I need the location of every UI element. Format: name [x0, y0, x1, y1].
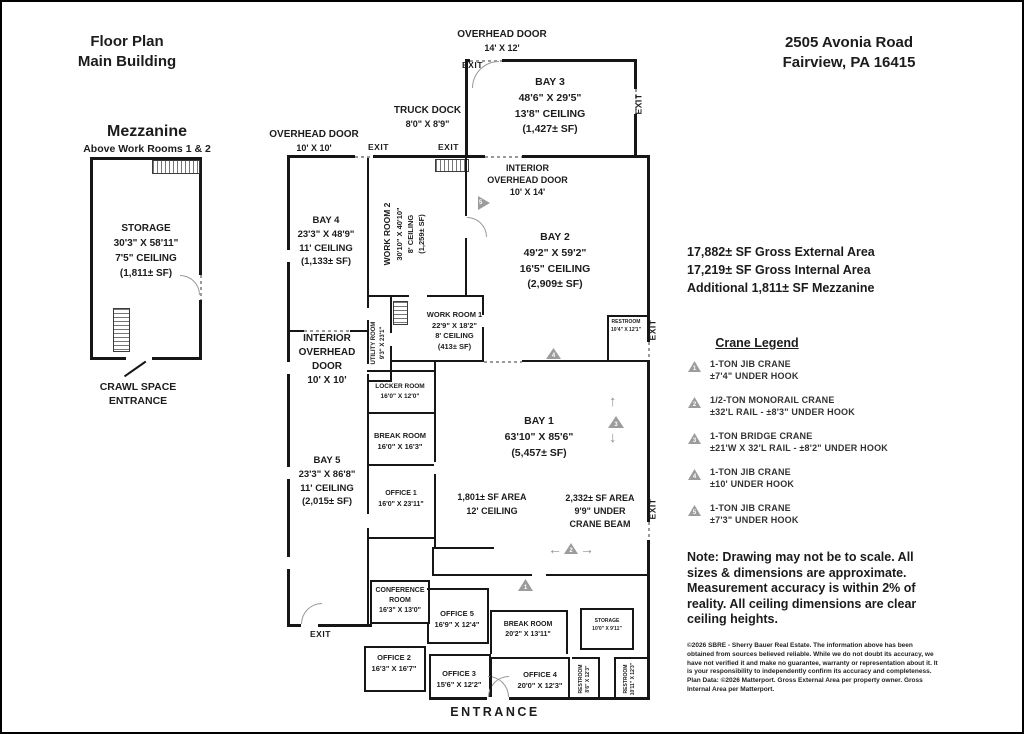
page-title-line1: Floor Plan [47, 32, 207, 52]
room-dims: 23'3" X 86'8" [287, 468, 367, 482]
door-label-line: OVERHEAD DOOR [470, 174, 585, 186]
door-label-line: 10' X 10' [290, 374, 364, 388]
wall-segment [522, 360, 647, 362]
legend-line: ±32'L RAIL - ±8'3" UNDER HOOK [710, 407, 960, 419]
wall-segment [502, 59, 637, 62]
room-dims: 16'0" X 16'3" [362, 441, 438, 452]
wall-segment [634, 59, 637, 89]
crane-legend-icon-2: 2 [688, 397, 701, 408]
exit-label: EXIT [310, 629, 331, 639]
page-title: Floor Plan Main Building [47, 32, 207, 71]
room-dims: 22'9" X 18'2" [397, 321, 512, 332]
exit-label: EXIT [647, 320, 657, 341]
room-break-mid: BREAK ROOM 16'0" X 16'3" [362, 430, 438, 453]
room-ceiling: 13'8" CEILING [470, 107, 630, 123]
exit-label: EXIT [438, 142, 459, 152]
room-dims: 8'6" X 12'3" [585, 665, 593, 694]
arrow-up-icon: ↑ [609, 394, 617, 409]
room-name: BAY 2 [485, 230, 625, 246]
crane-legend-icon-1: 1 [688, 361, 701, 372]
wall-segment [465, 158, 467, 216]
room-bay5: BAY 5 23'3" X 86'8" 11' CEILING (2,015± … [287, 454, 367, 509]
room-dims: 49'2" X 59'2" [485, 246, 625, 262]
wall-segment [429, 654, 491, 656]
room-dims: 30'3" X 58'11" [92, 236, 200, 251]
room-name: OFFICE 3 [428, 668, 490, 679]
door-label-line: OVERHEAD DOOR [264, 128, 364, 142]
truck-dock-label: TRUCK DOCK 8'0" X 8'9" [380, 104, 475, 131]
address-line1: 2505 Avonia Road [760, 33, 938, 53]
crane-marker-4-icon: 4 [546, 348, 561, 359]
overhead-door-opening [485, 156, 522, 158]
room-name: CONFERENCE ROOM [371, 586, 429, 606]
crane-legend-icon-3: 3 [688, 433, 701, 444]
door-label-line: INTERIOR [470, 162, 585, 174]
door-label-line: INTERIOR [290, 332, 364, 346]
room-name: UTILITY ROOM [370, 322, 379, 365]
room-conference: CONFERENCE ROOM 16'3" X 13'0" [371, 586, 429, 616]
copyright-text: ©2026 SBRE - Sherry Bauer Real Estate. T… [687, 642, 939, 695]
stairs-icon [435, 159, 469, 172]
door-label-line: 8'0" X 8'9" [380, 118, 475, 131]
gross-external-area: 17,882± SF Gross External Area [687, 244, 937, 262]
door-label-line: 10' X 14' [470, 186, 585, 198]
room-dims: 10'11" X 12'3" [630, 663, 638, 695]
room-area: (2,015± SF) [287, 495, 367, 509]
room-locker: LOCKER ROOM 16'0" X 12'0" [365, 382, 435, 402]
disclaimer-note: Note: Drawing may not be to scale. All s… [687, 550, 941, 628]
room-ceiling: 11' CEILING [287, 482, 367, 496]
wall-segment [287, 569, 290, 627]
door-label-line: DOOR [290, 360, 364, 374]
room-workroom1: WORK ROOM 1 22'9" X 18'2" 8' CEILING (41… [397, 310, 512, 352]
crane-marker-1-icon: 1 [518, 579, 533, 591]
room-name: RESTROOM [578, 665, 586, 694]
door-opening [355, 156, 373, 158]
room-name: OFFICE 5 [427, 608, 487, 619]
wall-segment [367, 528, 369, 624]
door-opening [200, 275, 202, 300]
wall-segment [632, 608, 634, 650]
room-bay2: BAY 2 49'2" X 59'2" 16'5" CEILING (2,909… [485, 230, 625, 293]
mezzanine-area: Additional 1,811± SF Mezzanine [687, 280, 937, 298]
door-label-line: 14' X 12' [432, 42, 572, 55]
wall-segment [427, 295, 484, 297]
room-restroom-bay2: RESTROOM 10'4" X 12'1" [606, 319, 646, 334]
room-name: STORAGE [582, 618, 632, 626]
stairs-icon [152, 160, 200, 174]
door-label-line: OVERHEAD DOOR [432, 28, 572, 42]
floor-plan-canvas: Floor Plan Main Building 2505 Avonia Roa… [0, 0, 1024, 734]
wall-segment [427, 588, 489, 590]
arrow-right-icon: → [580, 542, 594, 556]
wall-segment [546, 574, 650, 576]
wall-segment [318, 624, 372, 627]
overhead-door-top-label: OVERHEAD DOOR 14' X 12' [432, 28, 572, 55]
wall-segment [465, 238, 467, 295]
property-address: 2505 Avonia Road Fairview, PA 16415 [760, 33, 938, 72]
exit-label: EXIT [462, 60, 483, 70]
wall-segment [370, 622, 430, 624]
room-area: (1,259± SF) [416, 203, 427, 266]
room-storage-bottom: STORAGE 10'0" X 9'11" [582, 618, 632, 633]
overhead-door-left-label: OVERHEAD DOOR 10' X 10' [264, 128, 364, 154]
room-area: (5,457± SF) [469, 446, 609, 462]
crane-legend-item: 1-TON JIB CRANE ±7'3" UNDER HOOK [710, 503, 960, 527]
room-bay3: BAY 3 48'6" X 29'5" 13'8" CEILING (1,427… [470, 75, 630, 138]
legend-line: ±7'4" UNDER HOOK [710, 371, 960, 383]
room-name: RESTROOM [623, 663, 631, 695]
crane-legend-icon-4: 4 [688, 469, 701, 480]
legend-line: 1-TON JIB CRANE [710, 467, 960, 479]
legend-line: ±21'W X 32'L RAIL - ±8'2" UNDER HOOK [710, 443, 960, 455]
door-opening [484, 361, 522, 363]
room-name: BREAK ROOM [486, 620, 570, 630]
entrance-label: ENTRANCE [430, 703, 560, 721]
wall-segment [370, 580, 430, 582]
area-2332-label: 2,332± SF AREA 9'9" UNDER CRANE BEAM [548, 492, 652, 531]
wall-segment [427, 642, 489, 644]
wall-segment [647, 158, 650, 342]
area-line: 1,801± SF AREA [439, 491, 545, 505]
room-name: WORK ROOM 1 [397, 310, 512, 321]
room-ceiling: 7'5" CEILING [92, 251, 200, 266]
room-dims: 16'3" X 13'0" [371, 606, 429, 616]
room-dims: 10'4" X 12'1" [606, 327, 646, 335]
door-label-line: TRUCK DOCK [380, 104, 475, 118]
room-area: (1,811± SF) [92, 266, 200, 281]
legend-line: 1-TON BRIDGE CRANE [710, 431, 960, 443]
page-title-line2: Main Building [47, 52, 207, 72]
room-break-bottom: BREAK ROOM 20'2" X 13'11" [486, 620, 570, 640]
wall-segment [580, 648, 634, 650]
wall-segment [467, 155, 485, 158]
door-swing-icon [467, 217, 487, 237]
crawl-line1: CRAWL SPACE [78, 380, 198, 394]
mezzanine-title-text: Mezzanine [67, 120, 227, 143]
arrow-left-icon: ← [548, 542, 562, 556]
door-label-line: OVERHEAD [290, 346, 364, 360]
room-restroom-b: RESTROOM 10'11" X 12'3" [603, 652, 657, 706]
wall-segment [364, 646, 426, 648]
room-dims: 15'6" X 12'2" [428, 679, 490, 690]
exit-label: EXIT [633, 94, 643, 115]
interior-overhead-door-left-label: INTERIOR OVERHEAD DOOR 10' X 10' [290, 332, 364, 388]
wall-segment [634, 114, 637, 158]
room-dims: 20'2" X 13'11" [486, 630, 570, 640]
wall-segment [392, 360, 484, 362]
wall-segment [287, 624, 301, 627]
wall-segment [90, 357, 126, 360]
room-dims: 63'10" X 85'6" [469, 430, 609, 446]
address-line2: Fairview, PA 16415 [760, 53, 938, 73]
area-1801-label: 1,801± SF AREA 12' CEILING [439, 491, 545, 518]
room-ceiling: 16'5" CEILING [485, 262, 625, 278]
area-line: 12' CEILING [439, 505, 545, 519]
room-area: (1,427± SF) [470, 122, 630, 138]
room-area: (2,909± SF) [485, 277, 625, 293]
wall-segment [429, 697, 487, 700]
room-name: OFFICE 1 [365, 489, 437, 500]
room-name: BAY 5 [287, 454, 367, 468]
room-name: BREAK ROOM [362, 430, 438, 441]
room-dims: 9'3" X 23'1" [379, 322, 388, 365]
crane-legend-item: 1/2-TON MONORAIL CRANE ±32'L RAIL - ±8'3… [710, 395, 960, 419]
wall-segment [607, 315, 647, 317]
door-swing-icon [301, 603, 322, 624]
wall-segment [522, 155, 634, 158]
wall-segment [373, 155, 467, 158]
room-bay1: BAY 1 63'10" X 85'6" (5,457± SF) [469, 414, 609, 461]
gross-internal-area: 17,219± SF Gross Internal Area [687, 262, 937, 280]
room-office5: OFFICE 5 16'9" X 12'4" [427, 608, 487, 631]
wall-segment [369, 295, 409, 297]
room-name: BAY 3 [470, 75, 630, 91]
legend-line: 1-TON JIB CRANE [710, 503, 960, 515]
exit-label: EXIT [368, 142, 389, 152]
room-workroom2: WORK ROOM 2 30'10" X 40'10" 8' CEILING (… [354, 184, 454, 284]
stairs-icon [113, 308, 130, 352]
room-dims: 48'6" X 29'5" [470, 91, 630, 107]
room-name: RESTROOM [606, 319, 646, 327]
door-opening [648, 342, 650, 360]
wall-segment [434, 547, 494, 549]
area-line: 2,332± SF AREA [548, 492, 652, 505]
room-office3: OFFICE 3 15'6" X 12'2" [428, 668, 490, 691]
legend-line: ±7'3" UNDER HOOK [710, 515, 960, 527]
wall-segment [287, 155, 355, 158]
mezzanine-subtitle: Above Work Rooms 1 & 2 [67, 143, 227, 156]
wall-segment [367, 412, 434, 414]
mezzanine-title: Mezzanine Above Work Rooms 1 & 2 [67, 120, 227, 156]
room-dims: 16'0" X 23'11" [365, 500, 437, 511]
crane-marker-2-icon: 2 [564, 543, 578, 554]
arrow-down-icon: ↓ [609, 430, 617, 445]
crawl-space-label: CRAWL SPACE ENTRANCE [78, 380, 198, 408]
room-dims: 16'9" X 12'4" [427, 619, 487, 630]
crane-marker-3-icon: 3 [608, 416, 624, 428]
legend-line: 1/2-TON MONORAIL CRANE [710, 395, 960, 407]
room-mezz-storage: STORAGE 30'3" X 58'11" 7'5" CEILING (1,8… [92, 221, 200, 281]
crane-legend-icon-5: 5 [688, 505, 701, 516]
room-dims: 30'10" X 40'10" [394, 203, 405, 266]
room-name: STORAGE [92, 221, 200, 236]
area-line: 9'9" UNDER [548, 505, 652, 518]
wall-segment [490, 610, 568, 612]
room-name: OFFICE 2 [362, 652, 426, 663]
wall-segment [367, 464, 434, 466]
room-dims: 16'3" X 16'7" [362, 663, 426, 674]
wall-segment [432, 574, 532, 576]
crane-legend-item: 1-TON JIB CRANE ±10' UNDER HOOK [710, 467, 960, 491]
room-name: WORK ROOM 2 [381, 203, 394, 266]
room-dims: 10'0" X 9'11" [582, 626, 632, 634]
wall-segment [199, 300, 202, 360]
crane-legend-item: 1-TON BRIDGE CRANE ±21'W X 32'L RAIL - ±… [710, 431, 960, 455]
wall-segment [364, 690, 426, 692]
room-name: BAY 1 [469, 414, 609, 430]
wall-segment [580, 608, 634, 610]
room-office2: OFFICE 2 16'3" X 16'7" [362, 652, 426, 675]
crane-legend-item: 1-TON JIB CRANE ±7'4" UNDER HOOK [710, 359, 960, 383]
crawl-space-pointer-line [124, 361, 146, 377]
wall-segment [152, 357, 202, 360]
room-name: LOCKER ROOM [365, 382, 435, 392]
wall-segment [432, 547, 434, 576]
area-line: CRANE BEAM [548, 518, 652, 531]
room-office1: OFFICE 1 16'0" X 23'11" [365, 489, 437, 510]
room-ceiling: 8' CEILING [397, 331, 512, 342]
crane-legend-title: Crane Legend [687, 336, 827, 350]
area-summary: 17,882± SF Gross External Area 17,219± S… [687, 244, 937, 297]
door-label-line: 10' X 10' [264, 142, 364, 154]
legend-line: ±10' UNDER HOOK [710, 479, 960, 491]
legend-line: 1-TON JIB CRANE [710, 359, 960, 371]
room-utility: UTILITY ROOM 9'3" X 23'1" [354, 308, 404, 378]
interior-overhead-door-bay2-label: INTERIOR OVERHEAD DOOR 10' X 14' [470, 162, 585, 198]
wall-segment [434, 474, 436, 548]
crawl-line2: ENTRANCE [78, 394, 198, 408]
room-ceiling: 8' CEILING [405, 203, 416, 266]
room-area: (413± SF) [397, 342, 512, 353]
room-dims: 16'0" X 12'0" [365, 392, 435, 402]
wall-segment [367, 537, 434, 539]
